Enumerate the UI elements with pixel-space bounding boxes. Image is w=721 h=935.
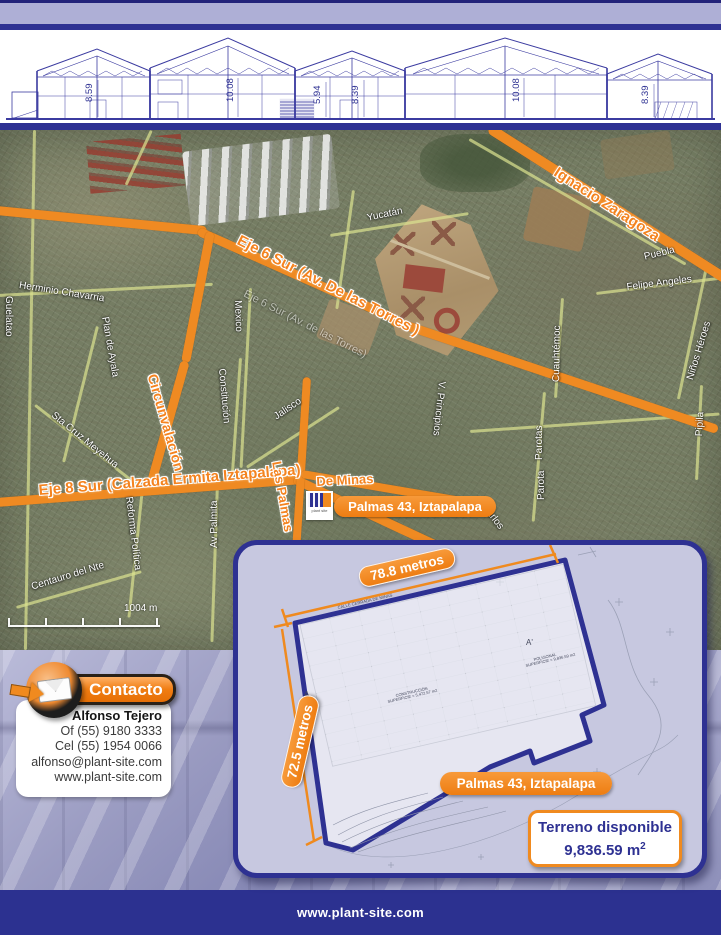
terreno-disponible-box: Terreno disponible 9,836.59 m2	[528, 810, 682, 867]
dim-label-6: 8.39	[640, 86, 651, 105]
road-label-de-minas: De Minas	[316, 471, 374, 489]
street-label-yucatan: Yucatán	[366, 205, 404, 223]
logo-orange-block	[323, 493, 331, 507]
building-sections-drawing: 8.59 10.08 5.94 8.39 10.08 8.39	[0, 30, 721, 123]
street-label-jalisco: Jalisco	[272, 396, 304, 422]
footer-link[interactable]: www.plant-site.com	[297, 905, 424, 920]
street-label-puebla: Puebla	[643, 244, 676, 262]
section-marker-a2: A'	[526, 638, 533, 647]
street-label-av-palmita: Av Palmita	[209, 500, 220, 548]
dim-label-5: 10.08	[511, 78, 522, 102]
prison-building-x2	[431, 221, 456, 246]
footer-bar: www.plant-site.com	[0, 890, 721, 935]
dim-label-2: 10.08	[225, 78, 236, 102]
street-label-sta-cruz: Sta Cruz Meyehua	[49, 410, 120, 471]
divider-rule-bottom	[0, 123, 721, 130]
plant-site-logo: plant site	[306, 491, 333, 520]
contact-cell-phone: Cel (55) 1954 0066	[22, 739, 162, 755]
location-badge: Palmas 43, Iztapalapa	[334, 496, 496, 517]
architecture-drawing-strip: 8.59 10.08 5.94 8.39 10.08 8.39	[0, 30, 721, 123]
highway-circunvalacion-n	[181, 231, 215, 363]
industrial-buildings-cluster	[182, 134, 340, 227]
terreno-value: 9,836.59 m2	[564, 837, 645, 860]
street-label-principios: V. Principios	[430, 381, 447, 437]
site-plan-panel: CALLE CERRADA DE MINAS A A' POLIGONAL SU…	[233, 540, 707, 878]
street-label-centauro: Centauro del Nte	[30, 560, 106, 593]
brown-field-2	[600, 130, 675, 179]
street-label-plan-ayala: Plan de Ayala	[99, 316, 120, 378]
inset-location-badge: Palmas 43, Iztapalapa	[440, 772, 612, 795]
scale-bar	[8, 618, 160, 627]
street-label-constitucion: Constitución	[216, 368, 232, 424]
brochure-page: 8.59 10.08 5.94 8.39 10.08 8.39	[0, 0, 721, 935]
dim-label-4: 8.39	[350, 86, 361, 105]
street-label-cuauhtemoc: Cuauhtémoc	[551, 325, 563, 382]
logo-blue-block	[308, 493, 323, 507]
street-label-pipila: Pipila	[694, 412, 706, 437]
street-label-felipe: Felipe Angeles	[626, 274, 692, 293]
contact-office-phone: Of (55) 9180 3333	[22, 724, 162, 740]
logo-text: plant site	[308, 507, 331, 515]
scale-label: 1004 m	[124, 603, 157, 614]
street-label-parotas: Parotas	[534, 426, 545, 460]
street-label-mexico: Mexico	[232, 300, 244, 332]
dim-label-1: 8.59	[84, 84, 95, 103]
terreno-title: Terreno disponible	[538, 818, 672, 837]
top-band	[0, 0, 721, 24]
street-label-guelatao: Guelatao	[3, 296, 14, 337]
contact-card: Alfonso Tejero Of (55) 9180 3333 Cel (55…	[16, 700, 171, 797]
dim-label-3: 5.94	[312, 86, 323, 105]
contact-email-link[interactable]: alfonso@plant-site.com	[22, 755, 162, 771]
road-jalisco	[246, 406, 340, 468]
contact-website-link[interactable]: www.plant-site.com	[22, 770, 162, 786]
prison-red-roof	[403, 264, 446, 293]
street-label-parota: Parota	[536, 471, 547, 500]
